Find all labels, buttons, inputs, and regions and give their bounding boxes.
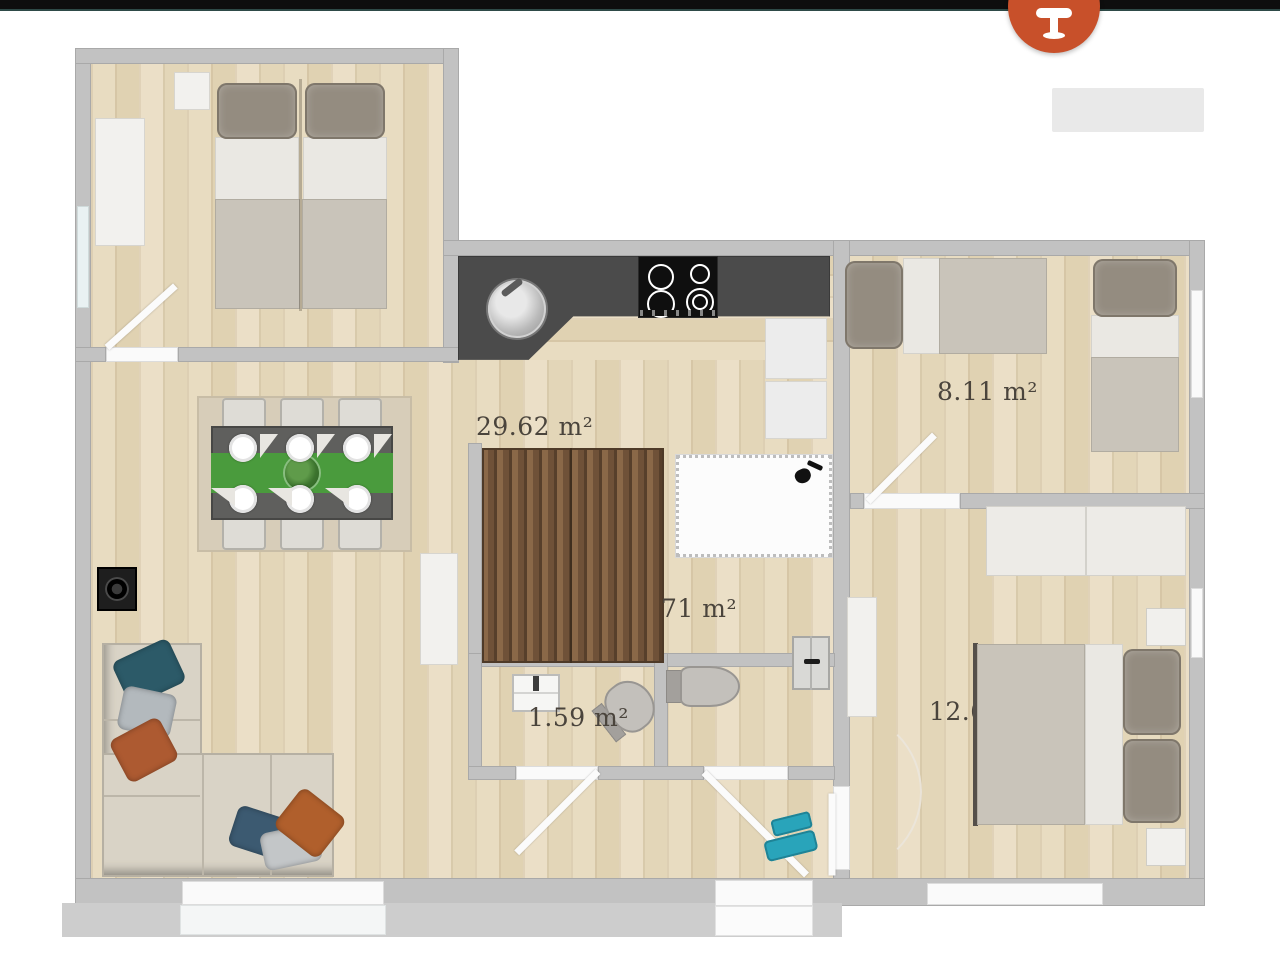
- napkin: [211, 488, 235, 506]
- staircase: [482, 448, 664, 663]
- staircase-seam: [570, 448, 572, 663]
- toilet-nook: [666, 666, 742, 708]
- kitchen-appliance-top: [765, 318, 827, 379]
- nightstand: [1146, 608, 1186, 646]
- bed-double-left: [213, 79, 389, 311]
- napkin: [317, 434, 335, 458]
- burner: [690, 264, 710, 284]
- cabinet-handle: [804, 659, 820, 664]
- wall-top-main: [443, 240, 1205, 256]
- wall-wc-bottom-a: [468, 766, 516, 780]
- entry-door-sill: [715, 906, 813, 936]
- window-sill-bottom-left: [180, 905, 386, 935]
- burner: [648, 264, 674, 290]
- wardrobe-left: [95, 118, 145, 246]
- entry-door-threshold: [715, 880, 813, 906]
- window-left-bedroom: [77, 206, 89, 308]
- window-bottom-right: [927, 883, 1103, 905]
- napkin: [268, 488, 292, 506]
- window-right-mid: [1191, 588, 1203, 658]
- bed-double-br: [973, 643, 1184, 826]
- wall-left: [75, 48, 91, 905]
- room-label-main: 29.62 m²: [476, 412, 593, 441]
- window-right-top: [1191, 290, 1203, 398]
- pedestal-table-icon: [1034, 8, 1074, 44]
- wall-top-bedroom: [75, 48, 459, 64]
- kitchen-appliance-bottom: [765, 381, 827, 439]
- kitchen-sink: [488, 280, 546, 338]
- wall-bedroom-bottom-b: [178, 347, 459, 362]
- wardrobe-top-br: [986, 506, 1186, 576]
- placeholder-button[interactable]: [1052, 88, 1204, 132]
- napkin: [260, 434, 278, 458]
- floating-action-button[interactable]: [1008, 0, 1100, 53]
- wall-wc-bottom-b: [598, 766, 704, 780]
- bed-single-vertical: [1090, 257, 1180, 453]
- room-label-top-right: 8.11 m²: [937, 377, 1038, 406]
- basin-faucet: [533, 676, 539, 691]
- wall-bedroom-bottom-a: [75, 347, 106, 362]
- wood-stove: [97, 567, 137, 611]
- place-setting: [343, 434, 371, 462]
- wall-bedroom-right: [443, 48, 459, 363]
- wall-cabinet: [792, 636, 830, 690]
- shelf-top-left: [174, 72, 210, 110]
- hall-closet: [847, 597, 877, 717]
- wall-wc-left: [468, 653, 482, 780]
- napkin: [325, 488, 349, 506]
- wall-right-mid-a: [850, 493, 864, 509]
- room-label-partial: 71 m²: [661, 594, 737, 623]
- stove-fan-icon: [105, 577, 129, 601]
- basin-divider: [514, 692, 558, 694]
- room-label-wc: 1.59 m²: [528, 703, 629, 732]
- nightstand: [1146, 828, 1186, 866]
- living-shelf: [420, 553, 458, 665]
- cooktop-controls: [640, 310, 716, 316]
- burner-inner-ring: [692, 294, 708, 310]
- cooktop: [638, 256, 718, 318]
- bed-single-horizontal: [843, 257, 1048, 355]
- window-bottom-left: [182, 881, 384, 905]
- shower-head-icon: [793, 461, 823, 487]
- floor-plan-screen: 12.6: [0, 0, 1280, 960]
- wall-stairs-left: [468, 443, 482, 667]
- place-setting: [286, 434, 314, 462]
- napkin: [374, 434, 392, 458]
- door-threshold-bedroom-tl: [106, 347, 178, 362]
- place-setting: [229, 434, 257, 462]
